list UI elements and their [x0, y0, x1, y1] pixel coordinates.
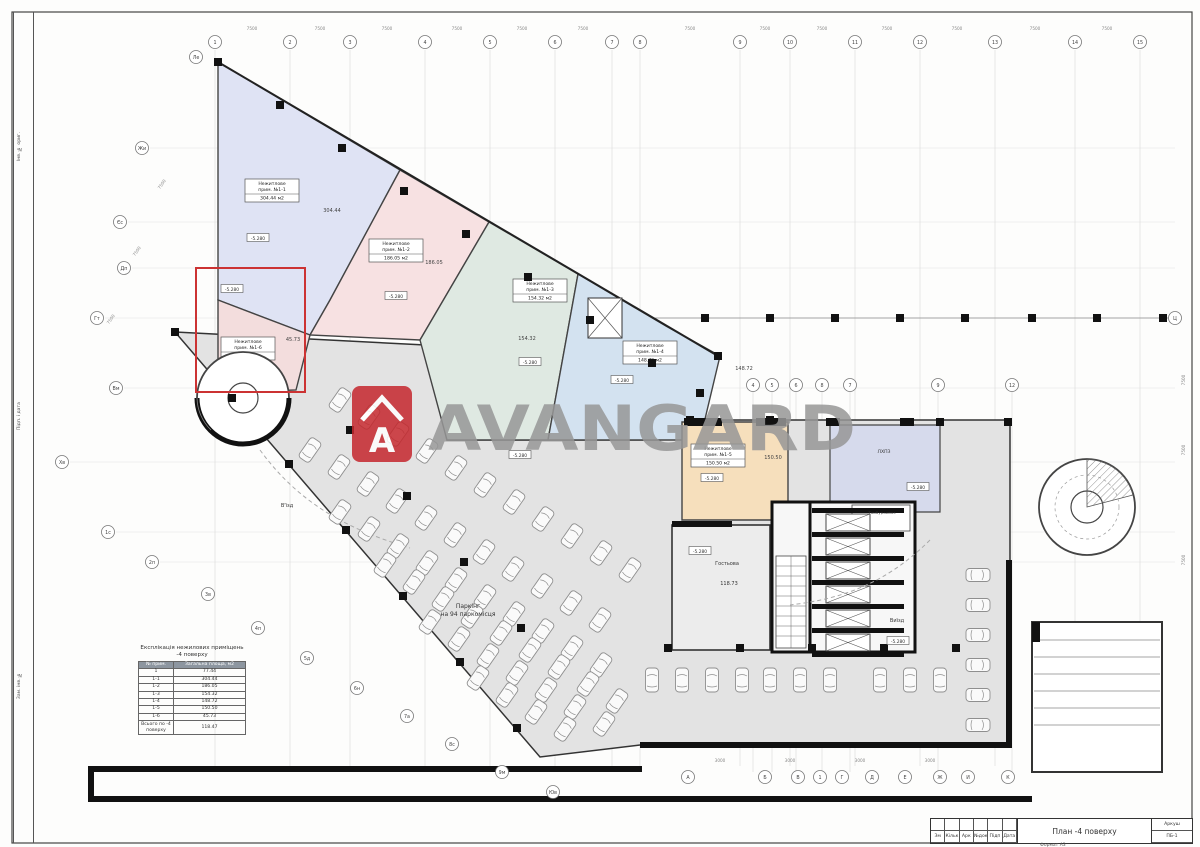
car-body	[966, 569, 990, 582]
axis-bubble: Єс	[114, 216, 127, 229]
axis-bubble: Б	[759, 771, 772, 784]
axis-bubble-label: 7	[610, 40, 613, 46]
watermark: A AVANGARD	[352, 386, 856, 465]
axis-bubble-label: К	[1006, 775, 1010, 781]
axis-bubble-label: 9	[936, 383, 939, 389]
table-cell: 77.44	[174, 669, 246, 676]
axis-bubble: 4	[747, 379, 760, 392]
elevator-core	[772, 502, 915, 657]
left-spiral-ramp	[197, 352, 289, 444]
axis-bubble: 12	[914, 36, 927, 49]
axis-bubble-label: 7а	[404, 714, 410, 720]
dimension-text: 7500	[952, 26, 963, 31]
elevation-value: -5.280	[693, 549, 707, 555]
axis-bubble: 2	[284, 36, 297, 49]
brand-logo: A	[352, 386, 412, 462]
side-strip-label: Інв. № ориг.	[17, 132, 22, 161]
table-row: 1-1304.44	[139, 676, 246, 683]
axis-bubble-label: 3	[348, 40, 351, 46]
car-body	[934, 668, 947, 692]
axis-bubble-label: 4п	[255, 626, 261, 632]
column-marker	[808, 644, 816, 652]
zone-area-text: 304.44 м2	[260, 196, 284, 202]
table-cell: 1-5	[139, 706, 174, 713]
column-marker	[456, 658, 464, 666]
dimension-text: 7500	[157, 178, 167, 190]
dimension-text: 7500	[882, 26, 893, 31]
axis-bubble: 3в	[202, 588, 215, 601]
format-note: Формат А3	[1040, 843, 1066, 847]
axis-bubble: Вм	[110, 382, 123, 395]
column-marker	[400, 187, 408, 195]
explication-title: Експлікація нежилових приміщень	[134, 645, 250, 652]
elevation-value: -5.280	[523, 360, 537, 366]
axis-bubble-label: 5	[488, 40, 491, 46]
axis-bubble-label: Дп	[121, 266, 128, 272]
table-cell: 1-3	[139, 691, 174, 698]
plan-label: Виїзд	[890, 618, 905, 624]
axis-bubble-label: 1с	[105, 530, 111, 536]
car-body	[966, 659, 990, 672]
table-cell: 186.05	[174, 684, 246, 691]
column-marker	[586, 316, 594, 324]
axis-bubble: В	[792, 771, 805, 784]
side-strip-label: Зам. інв. №	[17, 672, 22, 699]
axis-bubble: 3	[344, 36, 357, 49]
car-body	[676, 668, 689, 692]
axis-bubble: 4	[419, 36, 432, 49]
axis-bubble: 10	[784, 36, 797, 49]
dimension-text: 7500	[1181, 444, 1186, 455]
car-body	[764, 668, 777, 692]
stamp-cell-label: Кільк	[945, 831, 959, 843]
car-icon	[966, 629, 990, 642]
dimension-text: 3000	[855, 758, 866, 763]
axis-bubble-label: Б	[763, 775, 766, 781]
table-cell: 1-1	[139, 676, 174, 683]
axis-bubble-label: Ле	[193, 55, 200, 61]
axis-bubble-label: 9м	[499, 770, 506, 776]
column-marker	[1093, 314, 1101, 322]
elevation-value: -5.280	[705, 476, 719, 482]
car-icon	[764, 668, 777, 692]
elevation-value: -5.280	[389, 294, 403, 300]
axis-bubble: 1	[209, 36, 222, 49]
column-marker	[462, 230, 470, 238]
dimension-text: 7500	[760, 26, 771, 31]
table-cell: 1-6	[139, 713, 174, 720]
stamp-cell-empty	[945, 819, 959, 831]
table-cell: 150.50	[174, 706, 246, 713]
dimension-text: 7500	[1030, 26, 1041, 31]
axis-bubble-label: Гт	[94, 316, 100, 322]
axis-bubble: 7	[844, 379, 857, 392]
column-marker	[214, 58, 222, 66]
dimension-text: 7500	[685, 26, 696, 31]
axis-bubble-label: 8	[638, 40, 641, 46]
right-ramp-structure	[1032, 622, 1162, 772]
table-row: 177.44	[139, 669, 246, 676]
axis-bubble-label: 12	[1009, 383, 1015, 389]
axis-bubble-label: 1	[213, 40, 216, 46]
stamp-cell-empty	[960, 819, 974, 831]
dimension-text: 7500	[452, 26, 463, 31]
axis-bubble: Дп	[118, 262, 131, 275]
table-cell: 154.32	[174, 691, 246, 698]
axis-bubble: А	[682, 771, 695, 784]
zone-label-line2: прим. №1-2	[382, 247, 410, 253]
title-block-revision-grid: ЗмКількАрк№докПідпДата	[931, 819, 1018, 843]
table-row: 1-645.73	[139, 713, 246, 720]
car-body	[966, 719, 990, 732]
column-marker	[460, 558, 468, 566]
core-wall-bar	[812, 628, 904, 633]
column-marker	[896, 314, 904, 322]
car-body	[824, 668, 837, 692]
axis-bubble-label: Е	[903, 775, 906, 781]
plan-label: Тамбур-шлюз	[868, 510, 896, 515]
column-marker	[524, 273, 532, 281]
plan-label: Паркінг	[456, 603, 480, 610]
elevation-value: -5.280	[911, 485, 925, 491]
axis-bubble-label: Жи	[138, 146, 146, 152]
axis-bubble: 7а	[401, 710, 414, 723]
axis-bubble-label: 6н	[354, 686, 360, 692]
axis-bubble: 6	[790, 379, 803, 392]
core-wall-bar	[812, 556, 904, 561]
explication-table: Експлікація нежилових приміщень -4 повер…	[134, 645, 250, 735]
column-marker	[285, 460, 293, 468]
axis-bubble: 14	[1069, 36, 1082, 49]
elevation-value: -5.280	[251, 236, 265, 242]
axis-bubble: 9	[932, 379, 945, 392]
axis-bubble: Г	[836, 771, 849, 784]
car-body	[706, 668, 719, 692]
dimension-text: 3000	[925, 758, 936, 763]
axis-bubble-label: 7	[848, 383, 851, 389]
axis-bubble: Ц	[1169, 312, 1182, 325]
axis-bubble-label: 15	[1137, 40, 1143, 46]
axis-bubble: 1	[814, 771, 827, 784]
axis-bubble-label: 11	[852, 40, 858, 46]
zone-label-line1: Нежитлове	[234, 339, 262, 345]
zone-area-text: 186.05 м2	[384, 256, 408, 262]
stamp-cell-empty	[988, 819, 1002, 831]
plan-label: В'їзд	[281, 503, 294, 509]
table-row: 1-4148.72	[139, 699, 246, 706]
car-body	[966, 689, 990, 702]
zone-area-note: 148.72	[735, 366, 753, 372]
car-icon	[676, 668, 689, 692]
axis-bubble-label: 4	[423, 40, 426, 46]
sheet-label: Аркуш	[1152, 819, 1192, 831]
right-spiral-ramp	[1039, 459, 1135, 555]
column-marker	[399, 592, 407, 600]
dimension-text: 7500	[817, 26, 828, 31]
axis-bubble-label: 3в	[205, 592, 211, 598]
column-marker	[1004, 418, 1012, 426]
plan-label: Гостьова	[715, 561, 739, 567]
zone-area-note: 154.32	[518, 336, 536, 342]
car-icon	[966, 659, 990, 672]
core-wall-bar	[812, 580, 904, 585]
stamp-cell-empty	[974, 819, 988, 831]
zone-label-1-2: Нежитловеприм. №1-2186.05 м2	[369, 239, 423, 262]
column-marker	[648, 359, 656, 367]
car-icon	[934, 668, 947, 692]
axis-bubble: Ле	[190, 51, 203, 64]
table-row: 1-5150.50	[139, 706, 246, 713]
column-marker	[952, 644, 960, 652]
elevation-value: -5.280	[891, 639, 905, 645]
table-cell: 1	[139, 669, 174, 676]
axis-bubble: 6	[549, 36, 562, 49]
column-marker	[338, 144, 346, 152]
axis-bubble: 5д	[301, 652, 314, 665]
axis-bubble: 8	[816, 379, 829, 392]
car-body	[794, 668, 807, 692]
zone-label-line1: Нежитлове	[258, 181, 286, 187]
car-icon	[966, 719, 990, 732]
column-marker	[513, 724, 521, 732]
axis-bubble: Ж	[934, 771, 947, 784]
watermark-text: AVANGARD	[428, 392, 856, 465]
axis-bubble-label: 8	[820, 383, 823, 389]
axis-bubble: 9	[734, 36, 747, 49]
axis-bubble-label: Ц	[1173, 316, 1177, 322]
axis-bubble-label: И	[966, 775, 970, 781]
plan-label: ЛХПЗ	[877, 449, 890, 455]
column-marker	[664, 644, 672, 652]
plan-label: 118.73	[720, 581, 738, 587]
zone-label-1-3: Нежитловеприм. №1-3154.32 м2	[513, 279, 567, 302]
column-marker	[736, 644, 744, 652]
zone-label-line1: Нежитлове	[526, 281, 554, 287]
column-marker	[228, 394, 236, 402]
dimension-text: 7500	[382, 26, 393, 31]
dimension-text: 7500	[517, 26, 528, 31]
column-marker	[403, 492, 411, 500]
core-wall-bar	[812, 532, 904, 537]
axis-bubble-label: 5	[770, 383, 773, 389]
axis-bubble: 1с	[102, 526, 115, 539]
zone-label-line2: прим. №1-3	[526, 287, 554, 293]
column-marker	[1028, 314, 1036, 322]
axis-bubble: 15	[1134, 36, 1147, 49]
column-marker	[714, 352, 722, 360]
column-marker	[831, 314, 839, 322]
axis-bubble: 13	[989, 36, 1002, 49]
side-strip-label: Підп. і дата	[17, 402, 22, 430]
axis-bubble-label: 12	[917, 40, 923, 46]
car-body	[736, 668, 749, 692]
axis-bubble-label: 9	[738, 40, 741, 46]
axis-bubble: Е	[899, 771, 912, 784]
axis-bubble-label: 10	[787, 40, 793, 46]
axis-bubble: 12	[1006, 379, 1019, 392]
table-cell: 304.44	[174, 676, 246, 683]
dimension-text: 7500	[1181, 554, 1186, 565]
core-wall-bar	[812, 604, 904, 609]
title-block: ЗмКількАрк№докПідпДата План -4 поверху А…	[930, 818, 1193, 844]
table-total-label: Всього по -4 поверху	[139, 721, 174, 735]
axis-bubble: 2п	[146, 556, 159, 569]
axis-bubble-label: Ж	[937, 775, 943, 781]
table-cell: 148.72	[174, 699, 246, 706]
zone-area-note: 304.44	[323, 208, 341, 214]
car-icon	[646, 668, 659, 692]
zone-area-text: 154.32 м2	[528, 296, 552, 302]
dimension-text: 7500	[132, 245, 142, 257]
car-icon	[824, 668, 837, 692]
stamp-cell-label: Підп	[988, 831, 1002, 843]
dimension-text: 7500	[315, 26, 326, 31]
dimension-text: 7500	[578, 26, 589, 31]
zone-area-note: 45.73	[286, 337, 300, 343]
zone-label-line2: прим. №1-1	[258, 187, 286, 193]
column-marker	[276, 101, 284, 109]
axis-bubble: Хв	[56, 456, 69, 469]
column-marker	[517, 624, 525, 632]
drawing-sheet: Нежитловеприм. №1-1304.44 м2304.44Нежитл…	[0, 0, 1200, 847]
column-marker	[1159, 314, 1167, 322]
car-icon	[966, 569, 990, 582]
axis-bubble: Д	[866, 771, 879, 784]
dimension-text: 7500	[247, 26, 258, 31]
axis-bubble-label: Вм	[113, 386, 120, 392]
axis-bubble: 6н	[351, 682, 364, 695]
car-icon	[966, 689, 990, 702]
explication-subtitle: -4 поверху	[134, 652, 250, 659]
column-marker	[171, 328, 179, 336]
table-row: 1-3154.32	[139, 691, 246, 698]
sheet-number: ПБ-1	[1152, 831, 1192, 843]
axis-bubble-label: 6	[553, 40, 556, 46]
car-body	[966, 599, 990, 612]
car-icon	[966, 599, 990, 612]
axis-bubble: 7	[606, 36, 619, 49]
car-icon	[904, 668, 917, 692]
axis-bubble-label: 4	[751, 383, 754, 389]
column-marker	[880, 644, 888, 652]
axis-bubble-label: 13	[992, 40, 998, 46]
car-icon	[874, 668, 887, 692]
axis-bubble: И	[962, 771, 975, 784]
zone-area-note: 186.05	[425, 260, 443, 266]
axis-bubble: 4п	[252, 622, 265, 635]
axis-bubble-label: 1	[818, 775, 821, 781]
axis-bubble-label: 2	[288, 40, 291, 46]
axis-bubble-label: Юв	[549, 790, 557, 796]
axis-bubble-label: 14	[1072, 40, 1078, 46]
axis-bubble-label: 8с	[449, 742, 455, 748]
axis-bubble: Гт	[91, 312, 104, 325]
elevation-value: -5.280	[225, 287, 239, 293]
left-frame-strip: Інв. № ориг.Підп. і датаЗам. інв. №	[13, 12, 34, 843]
zone-label-line1: Нежитлове	[382, 241, 410, 247]
axis-bubble-label: 2п	[149, 560, 155, 566]
axis-bubble-label: 5д	[304, 656, 311, 662]
column-marker	[936, 418, 944, 426]
car-body	[904, 668, 917, 692]
zone-label-line2: прим. №1-6	[234, 345, 262, 351]
column-marker	[342, 526, 350, 534]
stamp-cell-label: Арк	[960, 831, 974, 843]
table-cell: 45.73	[174, 713, 246, 720]
dimension-text: 7500	[106, 313, 116, 325]
car-body	[966, 629, 990, 642]
axis-bubble-label: Єс	[117, 220, 123, 226]
column-marker	[961, 314, 969, 322]
table-col1-header: № прим.	[139, 662, 174, 669]
axis-bubble: 5	[766, 379, 779, 392]
stamp-cell-empty	[931, 819, 945, 831]
elevation-value: -5.280	[615, 378, 629, 384]
dimension-text: 3000	[715, 758, 726, 763]
stairs	[776, 556, 806, 648]
axis-bubble: 5	[484, 36, 497, 49]
drawing-title: План -4 поверху	[1018, 819, 1152, 843]
axis-bubble-label: В	[796, 775, 799, 781]
elevation-value: -5.280	[513, 453, 527, 459]
core-wall-bar	[812, 652, 904, 657]
zone-label-1-1: Нежитловеприм. №1-1304.44 м2	[245, 179, 299, 202]
zone-label-line1: Нежитлове	[636, 343, 664, 349]
car-icon	[794, 668, 807, 692]
zone-label-line2: прим. №1-4	[636, 349, 664, 355]
table-row: 1-2186.05	[139, 684, 246, 691]
axis-bubble: Жи	[136, 142, 149, 155]
stamp-cell-empty	[1003, 819, 1017, 831]
car-body	[874, 668, 887, 692]
dimension-text: 3000	[785, 758, 796, 763]
axis-bubble-label: 6	[794, 383, 797, 389]
table-total-value: 118.47	[174, 721, 246, 735]
axis-bubble: К	[1002, 771, 1015, 784]
axis-bubble-label: Хв	[59, 460, 65, 466]
brand-logo-letter: A	[369, 421, 396, 461]
stamp-cell-label: Дата	[1003, 831, 1017, 843]
axis-bubble: 11	[849, 36, 862, 49]
axis-bubble-label: Д	[870, 775, 874, 781]
axis-bubble: 8	[634, 36, 647, 49]
dimension-text: 7500	[1181, 374, 1186, 385]
car-body	[646, 668, 659, 692]
dimension-text: 7500	[1102, 26, 1113, 31]
column-marker	[766, 314, 774, 322]
column-marker	[701, 314, 709, 322]
stamp-cell-label: №док	[974, 831, 988, 843]
table-cell: 1-2	[139, 684, 174, 691]
axis-bubble: 9м	[496, 766, 509, 779]
axis-bubble: Юв	[547, 786, 560, 799]
axis-bubble-label: Г	[841, 775, 844, 781]
car-icon	[706, 668, 719, 692]
table-col2-header: Загальна площа, м2	[174, 662, 246, 669]
table-cell: 1-4	[139, 699, 174, 706]
stamp-cell-label: Зм	[931, 831, 945, 843]
plan-label: на 94 паркомісця	[441, 611, 496, 618]
car-icon	[736, 668, 749, 692]
axis-bubble: 8с	[446, 738, 459, 751]
